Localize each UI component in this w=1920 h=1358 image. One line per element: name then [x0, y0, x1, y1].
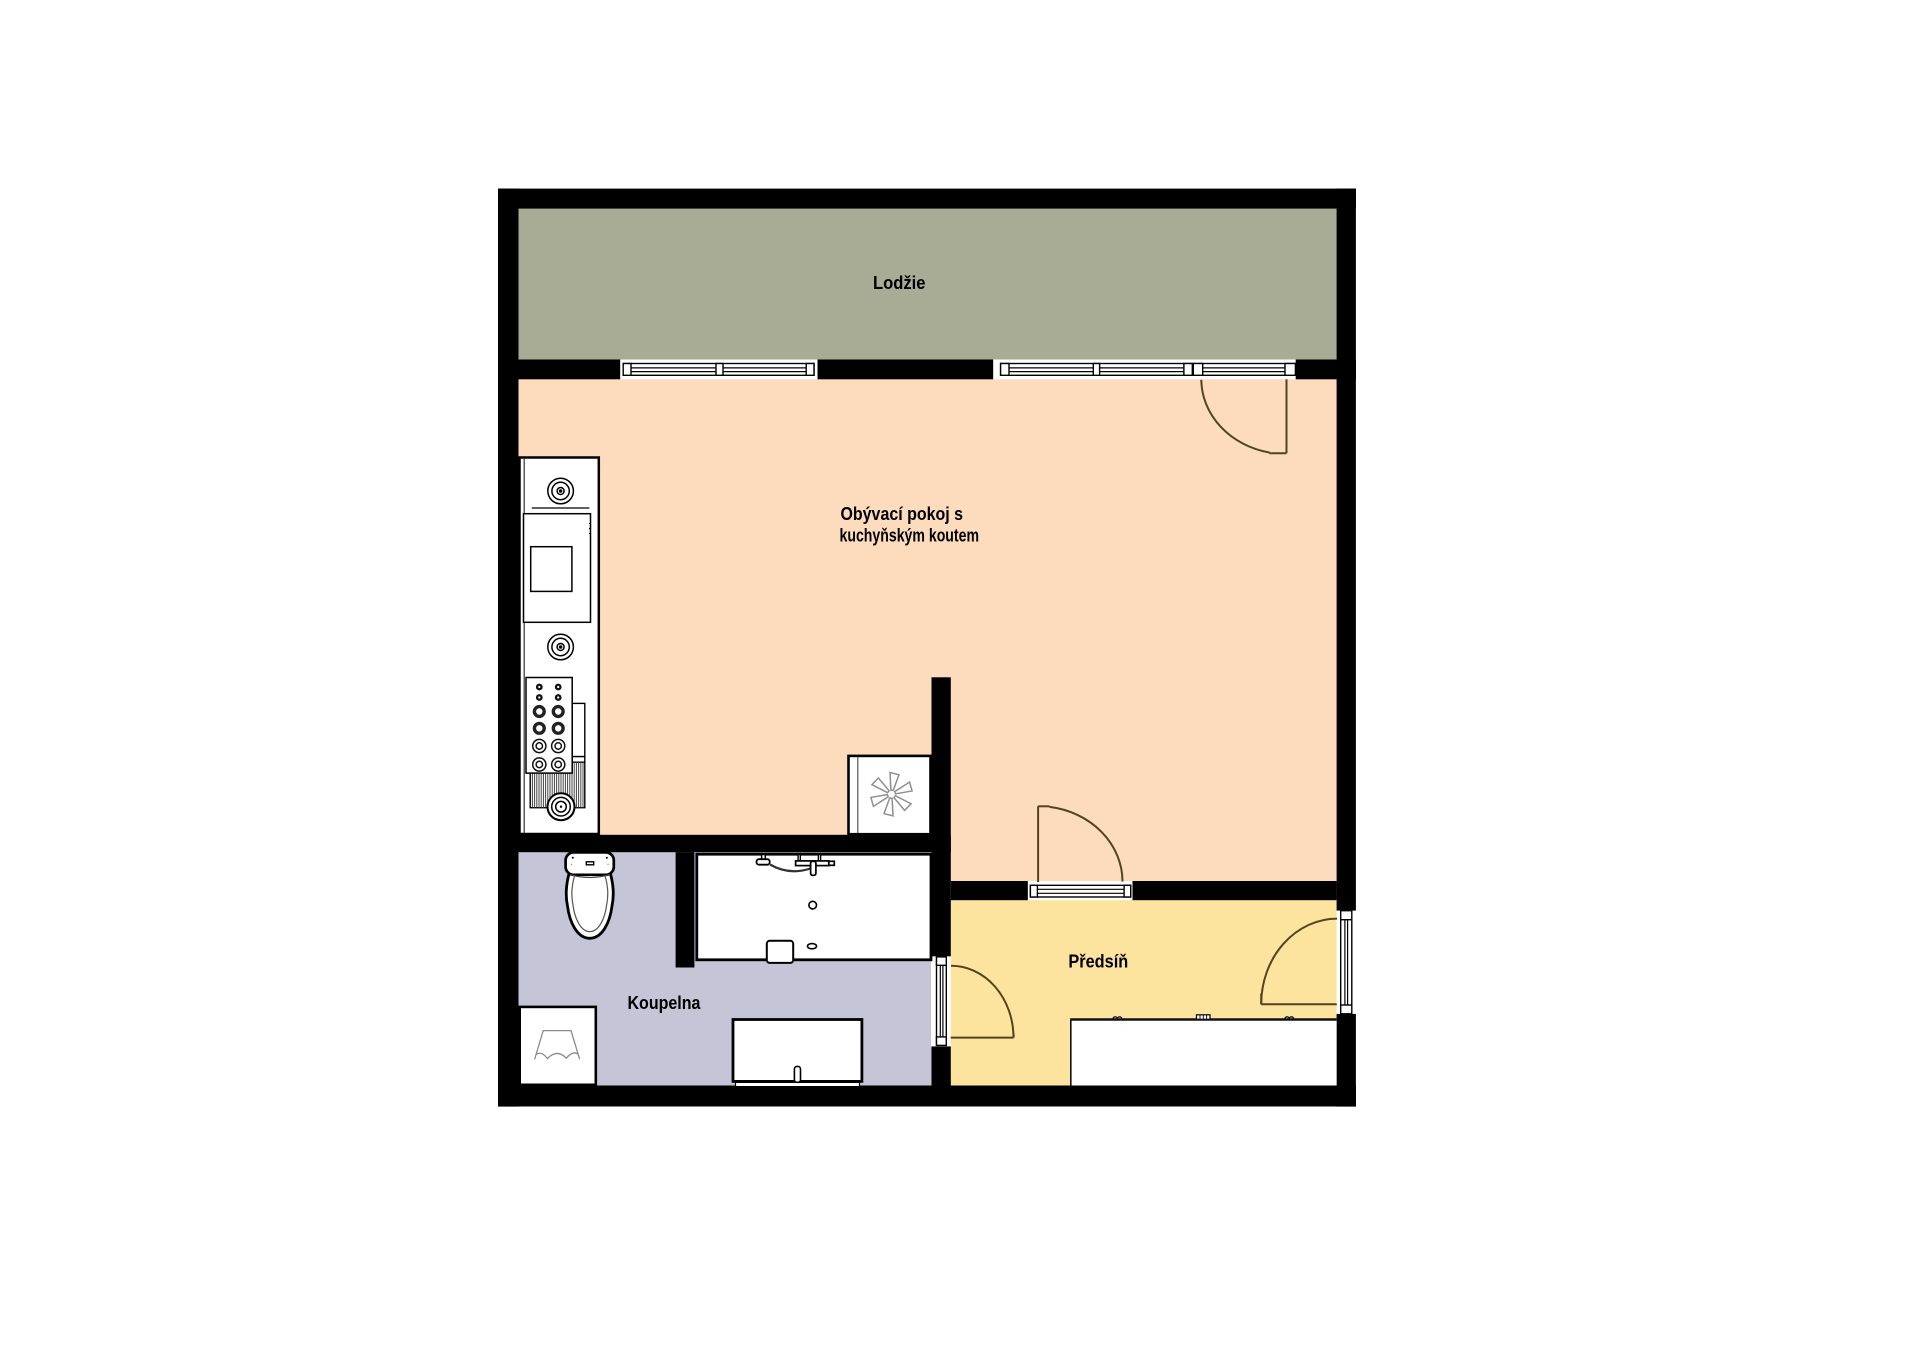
svg-text:Lodžie: Lodžie — [873, 272, 926, 293]
svg-text:kuchyňským koutem: kuchyňským koutem — [840, 525, 980, 546]
svg-text:Předsíň: Předsíň — [1068, 951, 1128, 972]
svg-text:Obývací pokoj s: Obývací pokoj s — [841, 503, 964, 524]
svg-text:Koupelna: Koupelna — [628, 992, 701, 1013]
